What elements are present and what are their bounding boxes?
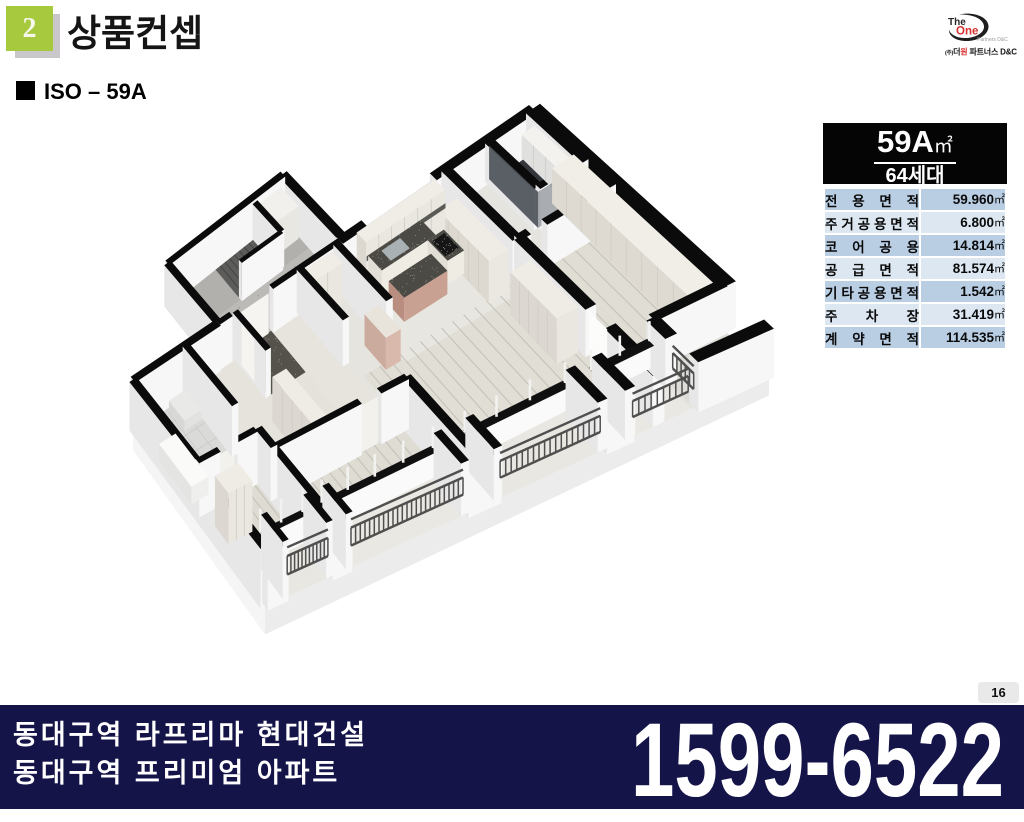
svg-text:Partners D&C: Partners D&C (977, 37, 1008, 43)
svg-text:One: One (956, 26, 978, 38)
svg-text:(주)더원 파트너스 D&C: (주)더원 파트너스 D&C (945, 47, 1017, 57)
